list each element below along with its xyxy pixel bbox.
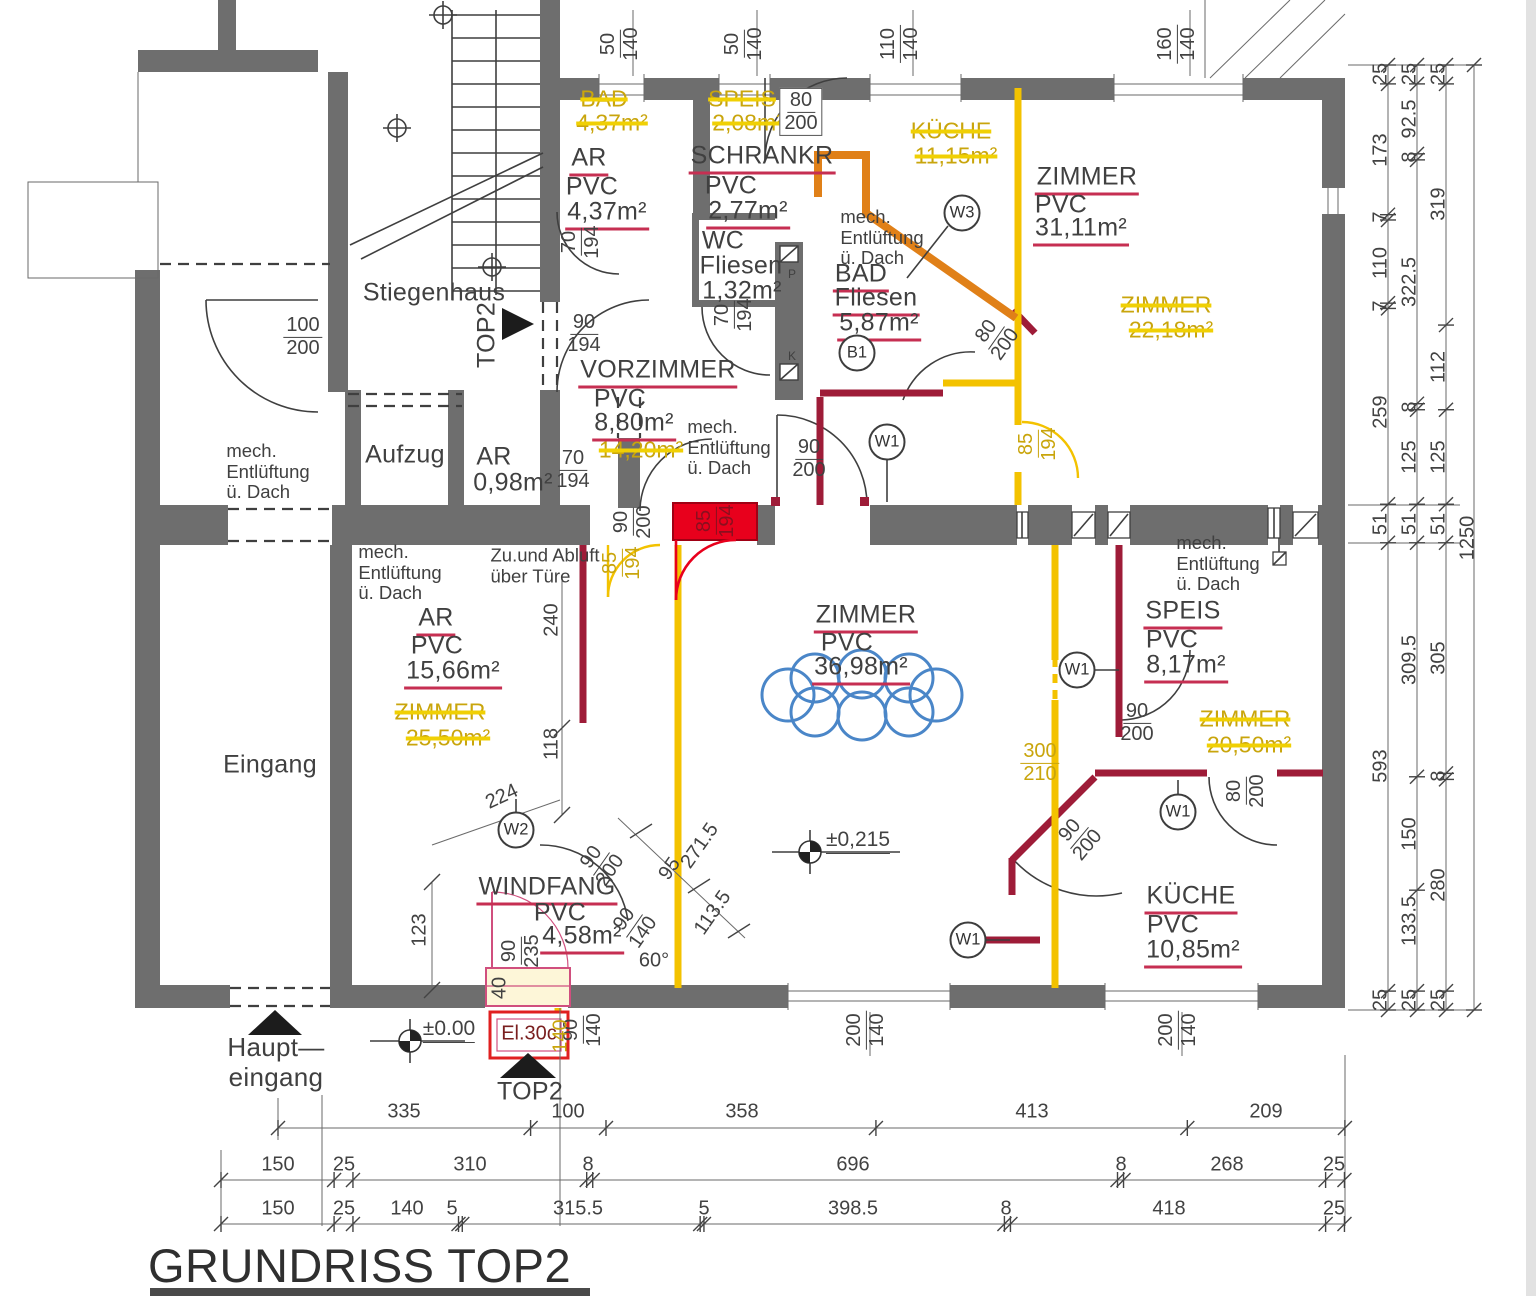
dim-right: 8 xyxy=(1399,401,1422,412)
window-dim-160-140: 160140 xyxy=(1155,24,1199,63)
window-dim-110-140-num: 110 xyxy=(878,25,901,63)
marker-w1-bad: W1 xyxy=(869,424,906,461)
door-dim-80-200-kueche: 80200 xyxy=(1224,774,1268,807)
dim-right: 280 xyxy=(1428,868,1451,901)
dim-right: 7 xyxy=(1370,300,1393,311)
window-dim-200-140-a-den: 140 xyxy=(867,1013,889,1046)
room-eingang: Eingang xyxy=(223,751,317,780)
dim-right: 25 xyxy=(1428,63,1451,85)
door-dim-70-194-a-num: 70 xyxy=(559,228,582,256)
room-speis-area: 8,17m² xyxy=(1144,651,1228,684)
dim-right: 25 xyxy=(1399,989,1422,1011)
dim-right: 25 xyxy=(1370,989,1393,1011)
dim-bottom: 5 xyxy=(698,1198,709,1221)
dim-bottom: 8 xyxy=(1115,1154,1126,1177)
door-dim-70-194-wc-num: 70 xyxy=(712,301,735,329)
door-dim-90-200-speis-den: 200 xyxy=(1120,724,1153,746)
dim-right: 133.5 xyxy=(1399,896,1422,946)
dim-bottom: 25 xyxy=(1323,1154,1345,1177)
window-dim-50-140-a-num: 50 xyxy=(598,30,621,58)
dim-118: 118 xyxy=(541,728,564,760)
dim-right: 8 xyxy=(1399,151,1422,162)
annotation-supply-air: Zu.und Abluft über Türe xyxy=(490,545,599,586)
dim-bottom: 335 xyxy=(387,1101,420,1124)
strike-kueche-upper: KÜCHE xyxy=(911,118,992,145)
label-top2-door: TOP2 xyxy=(473,302,502,368)
door-dim-80-200-top-num: 80 xyxy=(787,90,815,113)
door-dim-85-194-yellow-left-num: 85 xyxy=(600,549,623,577)
dim-right: 173 xyxy=(1370,133,1393,166)
marker-w2: W2 xyxy=(498,812,535,849)
dim-300-210-yellow-den: 210 xyxy=(1023,764,1056,786)
dim-right: 319 xyxy=(1428,187,1451,220)
strike-kueche-upper-area: 11,15m² xyxy=(915,143,998,170)
strike-zimmer-right-area: 22,18m² xyxy=(1129,317,1213,344)
door-dim-90-235-den: 235 xyxy=(522,934,544,967)
dim-40: 40 xyxy=(489,977,512,999)
strike-vorzimmer-area: 14,20m² xyxy=(599,437,683,464)
door-dim-70-194-wc-den: 194 xyxy=(735,298,757,331)
window-dim-110-140: 110140 xyxy=(878,25,922,63)
dim-bottom: 413 xyxy=(1015,1101,1048,1124)
dim-bottom: 150 xyxy=(261,1198,294,1221)
door-dim-90-200-bad-num: 90 xyxy=(795,437,823,460)
door-dim-90-194: 90194 xyxy=(567,312,600,356)
annotation-vent-right: mech. Entlüftung ü. Dach xyxy=(1176,533,1259,595)
window-dim-200-140-b: 200140 xyxy=(1156,1010,1200,1049)
floor-plan-drawing xyxy=(0,0,1536,1296)
door-dim-90-200-mid: 90200 xyxy=(611,505,655,538)
dim-right: 51 xyxy=(1428,513,1451,535)
window-dim-50-140-a-den: 140 xyxy=(621,27,643,60)
annotation-vent-bad: mech. Entlüftung ü. Dach xyxy=(840,207,923,269)
level-215: ±0,215 xyxy=(826,828,890,854)
marker-b1: B1 xyxy=(839,335,876,372)
dim-bottom: 5 xyxy=(446,1198,457,1221)
strike-speis-upper-area: 2,08m² xyxy=(712,110,784,137)
strike-zimmer-right: ZIMMER xyxy=(1121,292,1212,319)
door-dim-90-194-num: 90 xyxy=(570,312,598,335)
dim-bottom: 140 xyxy=(390,1198,423,1221)
aux-lines xyxy=(28,0,1536,1296)
room-ar-small-area: 0,98m² xyxy=(473,469,553,498)
strike-speis-upper: SPEIS xyxy=(708,86,776,113)
strike-zimmer-lower-right: ZIMMER xyxy=(1200,706,1291,733)
door-dim-100-200: 100200 xyxy=(283,315,322,359)
neighbour-stair xyxy=(1205,0,1345,78)
door-dim-70-194-a: 70194 xyxy=(559,225,603,258)
room-kueche-area: 10,85m² xyxy=(1144,936,1242,969)
shaft-p: P xyxy=(788,267,796,281)
dim-right: 305 xyxy=(1428,641,1451,674)
door-dim-85-194-yellow-left-den: 194 xyxy=(623,546,645,579)
label-haupteingang: Haupt— eingang xyxy=(227,1033,324,1093)
door-dim-80-200-kueche-num: 80 xyxy=(1224,777,1247,805)
dim-right: 322.5 xyxy=(1399,257,1422,307)
annotation-vent-vorzimmer: mech. Entlüftung ü. Dach xyxy=(687,417,770,479)
room-ar-small: AR xyxy=(476,443,511,472)
door-dim-70-194-ar: 70194 xyxy=(556,448,589,492)
marker-w1-speis: W1 xyxy=(1059,652,1096,689)
dim-bottom: 8 xyxy=(1000,1198,1011,1221)
door-dim-85-194-red: 85194 xyxy=(694,504,738,537)
dim-bottom: 209 xyxy=(1249,1101,1282,1124)
shaft-k: K xyxy=(788,349,796,363)
door-dim-90-194-den: 194 xyxy=(567,335,600,357)
window-dim-50-140-b-num: 50 xyxy=(722,30,745,58)
dim-bottom: 25 xyxy=(333,1198,355,1221)
annotation-vent-lower-left: mech. Entlüftung ü. Dach xyxy=(358,542,441,604)
room-aufzug: Aufzug xyxy=(365,441,445,470)
strike-bad-upper: BAD xyxy=(580,86,627,113)
floor-plan-canvas: BAD4,37m²ARPVC4,37m²SPEIS2,08m²SCHRANKRP… xyxy=(0,0,1536,1296)
door-dim-85-194-yellow-right-num: 85 xyxy=(1016,430,1039,458)
dim-bottom: 310 xyxy=(453,1154,486,1177)
dim-300-210-yellow: 300210 xyxy=(1020,741,1059,785)
door-dim-90-200-mid-num: 90 xyxy=(611,508,634,536)
door-dim-70-194-wc: 70194 xyxy=(712,298,756,331)
door-dim-90-200-speis-num: 90 xyxy=(1123,701,1151,724)
dim-bottom: 268 xyxy=(1210,1154,1243,1177)
door-dim-80-200-kueche-den: 200 xyxy=(1247,774,1269,807)
dim-300-210-yellow-num: 300 xyxy=(1020,741,1059,764)
window-dim-160-140-den: 140 xyxy=(1178,27,1200,60)
level-zero: ±0.00 xyxy=(423,1017,475,1043)
window-dim-200-140-a-num: 200 xyxy=(844,1010,867,1049)
strike-zimmer-lower-left: ZIMMER xyxy=(395,699,486,726)
dim-bottom: 358 xyxy=(725,1101,758,1124)
dim-right: 25 xyxy=(1428,989,1451,1011)
door-dim-85-194-yellow-right: 85194 xyxy=(1016,427,1060,460)
door-dim-100-200-den: 200 xyxy=(286,338,319,360)
dim-bottom: 100 xyxy=(551,1101,584,1124)
room-zimmer-big-area: 36,98m² xyxy=(812,653,910,686)
door-dim-70-194-ar-num: 70 xyxy=(559,448,587,471)
door-dim-90-200-mid-den: 200 xyxy=(634,505,656,538)
dim-right: 110 xyxy=(1370,247,1393,279)
staircase xyxy=(350,1,543,300)
dim-90-140-entry-den: 140 xyxy=(584,1013,606,1046)
window-dim-50-140-a: 50140 xyxy=(598,27,642,60)
annotation-vent-left: mech. Entlüftung ü. Dach xyxy=(226,441,309,503)
dim-right: 125 xyxy=(1428,440,1451,473)
dim-bottom: 315.5 xyxy=(553,1198,603,1221)
door-dim-85-194-red-den: 194 xyxy=(717,504,739,537)
door-dim-70-194-a-den: 194 xyxy=(582,225,604,258)
dim-240: 240 xyxy=(541,603,564,636)
dim-bottom: 8 xyxy=(582,1154,593,1177)
window-dim-200-140-b-num: 200 xyxy=(1156,1010,1179,1049)
dim-right: 259 xyxy=(1370,395,1393,428)
room-zimmer-upper-area: 31,11m² xyxy=(1033,214,1129,247)
dim-right: 8 xyxy=(1428,770,1451,781)
dim-right: 309.5 xyxy=(1399,635,1422,685)
dim-right: 593 xyxy=(1370,749,1393,782)
dim-right: 7 xyxy=(1370,211,1393,222)
drawing-title: GRUNDRISS TOP2 xyxy=(148,1238,571,1293)
door-dim-80-200-top-den: 200 xyxy=(784,113,817,135)
marker-w1-zimmer: W1 xyxy=(1160,794,1197,831)
door-dim-70-194-ar-den: 194 xyxy=(556,471,589,493)
dim-bottom: 25 xyxy=(333,1154,355,1177)
label-el30c: El.30c xyxy=(501,1023,557,1046)
dim-right: 51 xyxy=(1399,513,1422,535)
dim-bottom: 696 xyxy=(836,1154,869,1177)
dim-bottom: 398.5 xyxy=(828,1198,878,1221)
dim-right-total: 1250 xyxy=(1457,516,1480,561)
dim-right: 25 xyxy=(1370,63,1393,85)
door-dim-100-200-num: 100 xyxy=(283,315,322,338)
dim-bottom: 150 xyxy=(261,1154,294,1177)
door-dim-90-235-num: 90 xyxy=(499,937,522,965)
dim-right: 125 xyxy=(1399,440,1422,473)
window-dim-50-140-b: 50140 xyxy=(722,27,766,60)
window-dim-160-140-num: 160 xyxy=(1155,24,1178,63)
door-dim-90-200-speis: 90200 xyxy=(1120,701,1153,745)
window-dim-200-140-a: 200140 xyxy=(844,1010,888,1049)
strike-zimmer-lower-right-area: 20,50m² xyxy=(1207,732,1291,759)
window-dim-50-140-b-den: 140 xyxy=(745,27,767,60)
door-dim-85-194-yellow-left: 85194 xyxy=(600,546,644,579)
door-dim-85-194-yellow-right-den: 194 xyxy=(1039,427,1061,460)
dim-right: 112 xyxy=(1428,351,1451,383)
marker-w3: W3 xyxy=(944,195,981,232)
door-dim-85-194-red-num: 85 xyxy=(694,507,717,535)
dim-60deg: 60° xyxy=(639,950,669,973)
strike-zimmer-lower-left-area: 25,50m² xyxy=(406,725,490,752)
dim-right: 25 xyxy=(1399,63,1422,85)
marker-w1-kueche: W1 xyxy=(950,922,987,959)
room-schrankr: SCHRANKR xyxy=(689,142,836,175)
window-dim-200-140-b-den: 140 xyxy=(1179,1013,1201,1046)
dim-bottom: 25 xyxy=(1323,1198,1345,1221)
dim-123: 123 xyxy=(409,913,432,946)
door-dim-90-200-bad-den: 200 xyxy=(792,460,825,482)
strike-bad-upper-area: 4,37m² xyxy=(576,110,648,137)
door-dim-80-200-top: 80200 xyxy=(779,88,822,136)
dim-right: 51 xyxy=(1370,513,1393,535)
door-dim-90-235: 90235 xyxy=(499,934,543,967)
door-dim-90-200-bad: 90200 xyxy=(792,437,825,481)
dim-right: 92.5 xyxy=(1399,100,1422,139)
dim-bottom: 418 xyxy=(1152,1198,1185,1221)
room-ar-lower-area: 15,66m² xyxy=(404,657,502,690)
window-dim-110-140-den: 140 xyxy=(901,27,923,60)
dim-140-yellow: 140 xyxy=(550,1019,573,1052)
room-schrankr-area: 2,77m² xyxy=(706,197,790,230)
dim-right: 150 xyxy=(1399,817,1422,850)
